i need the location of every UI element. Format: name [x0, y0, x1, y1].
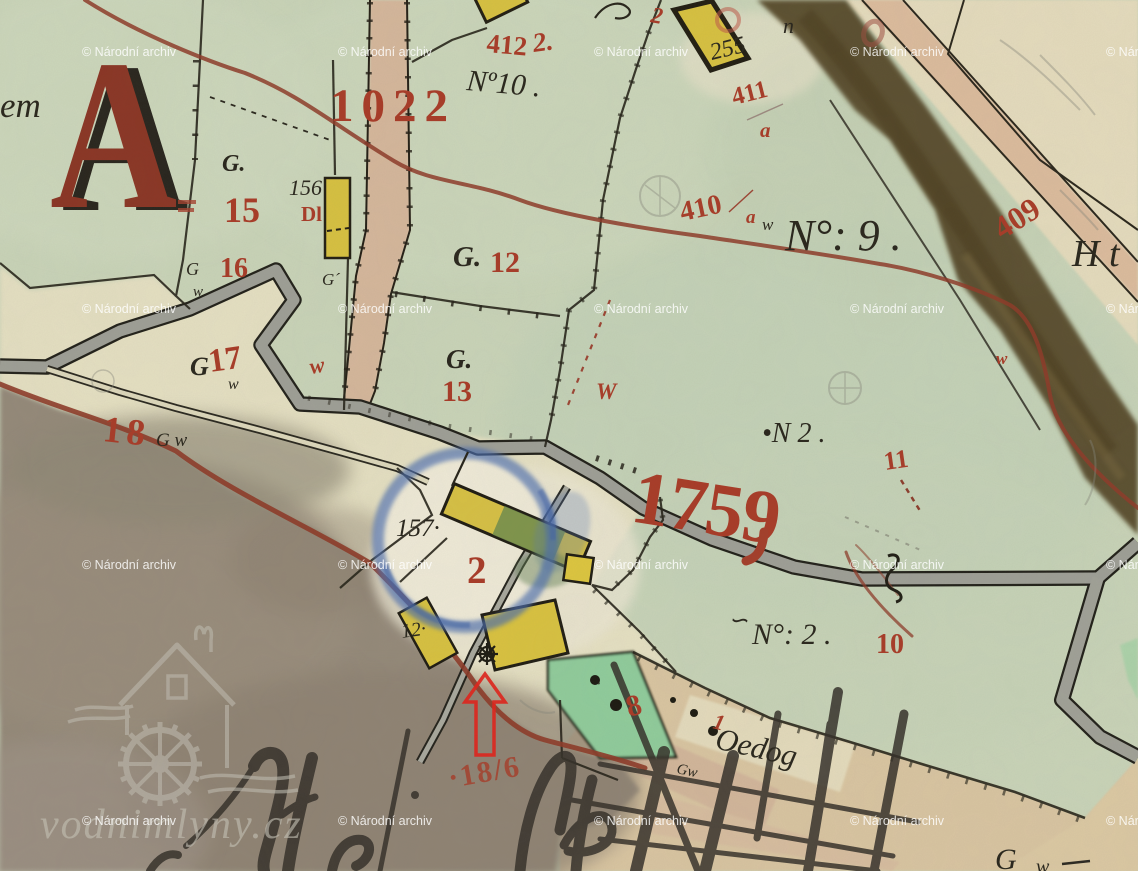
svg-text:© Národní archiv: © Národní archiv — [82, 558, 177, 572]
svg-text:© Národní archiv: © Národní archiv — [338, 45, 433, 59]
svg-text:© Národní archiv: © Národní archiv — [1106, 814, 1138, 828]
svg-text:© Národní archiv: © Národní archiv — [338, 558, 433, 572]
svg-text:© Národní archiv: © Národní archiv — [594, 814, 689, 828]
svg-text:© Národní archiv: © Národní archiv — [82, 45, 177, 59]
svg-text:© Národní archiv: © Národní archiv — [338, 302, 433, 316]
svg-text:© Národní archiv: © Národní archiv — [850, 814, 945, 828]
svg-text:© Národní archiv: © Národní archiv — [850, 302, 945, 316]
svg-text:© Národní archiv: © Národní archiv — [594, 45, 689, 59]
svg-text:© Národní archiv: © Národní archiv — [850, 45, 945, 59]
svg-text:© Národní archiv: © Národní archiv — [338, 814, 433, 828]
svg-text:© Národní archiv: © Národní archiv — [82, 814, 177, 828]
svg-text:© Národní archiv: © Národní archiv — [1106, 45, 1138, 59]
svg-text:© Národní archiv: © Národní archiv — [1106, 302, 1138, 316]
svg-text:© Národní archiv: © Národní archiv — [82, 302, 177, 316]
svg-text:© Národní archiv: © Národní archiv — [594, 558, 689, 572]
svg-text:© Národní archiv: © Národní archiv — [850, 558, 945, 572]
svg-text:© Národní archiv: © Národní archiv — [594, 302, 689, 316]
svg-text:© Národní archiv: © Národní archiv — [1106, 558, 1138, 572]
